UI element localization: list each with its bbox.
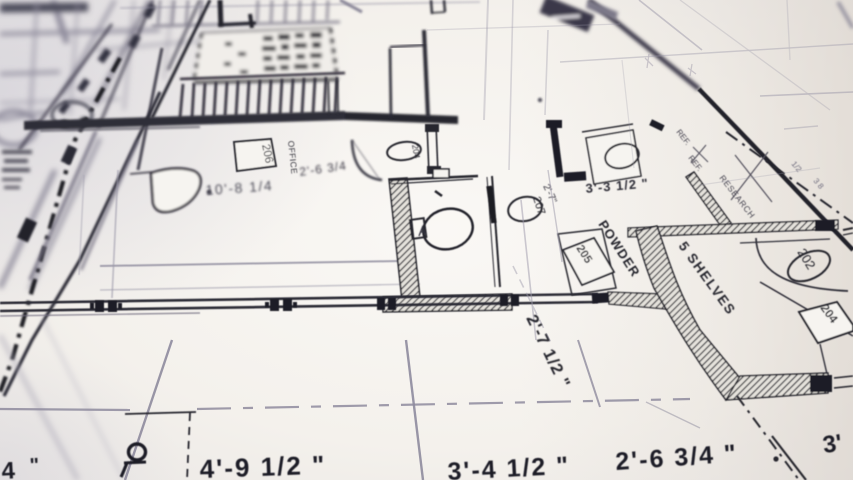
svg-text:": " xyxy=(29,455,40,477)
svg-text:3': 3' xyxy=(821,430,844,459)
svg-text:4'-9 1/2 ": 4'-9 1/2 " xyxy=(199,450,327,480)
svg-text:4: 4 xyxy=(1,457,16,480)
